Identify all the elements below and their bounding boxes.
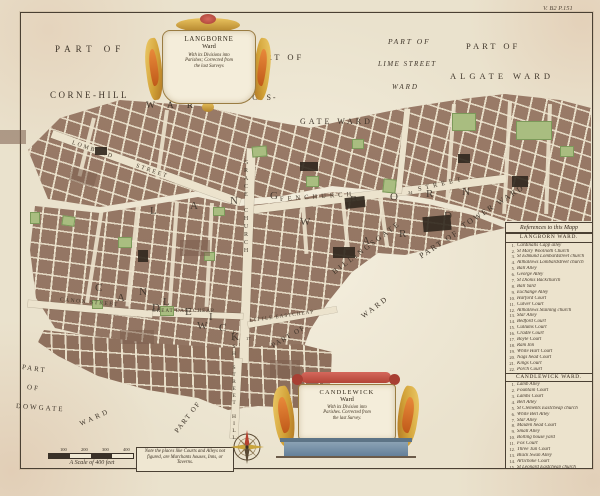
ward-letter-candlewick: A (117, 292, 125, 304)
area-label-algate-ward: ALGATE WARD (450, 71, 554, 81)
area-label-lime-street: LIME STREET (378, 60, 437, 68)
cartouche-title: CANDLEWICK (299, 389, 395, 396)
garden-patch (61, 215, 75, 227)
area-label-bishopsgate: GATE WARD (300, 117, 373, 126)
area-label-lime-ward: WARD (392, 83, 419, 91)
note-box: Note the places like Courts and Alleys n… (136, 447, 234, 472)
ward-letter-langborn: N (230, 195, 238, 207)
dark-building (458, 154, 470, 163)
ward-letter-ward: R (399, 228, 406, 240)
ward-letter-langborn: G (270, 190, 278, 202)
compass-rose-icon (228, 428, 266, 466)
garden-patch (118, 237, 132, 248)
cartouche-panel: CANDLEWICK Ward With its Division into P… (298, 384, 396, 440)
area-label-cornhill: CORNE-HILL (50, 90, 129, 100)
scale-tick: 100 (60, 447, 67, 452)
cartouche-pedestal (284, 442, 408, 456)
ref-name: St Leonard Eastcheap church (517, 465, 592, 468)
map-reference-number: 34 (408, 190, 413, 195)
dark-building (300, 162, 318, 171)
area-label-dowgate-of: OF (26, 383, 40, 393)
ward-letter-langborn: R (426, 188, 433, 200)
ward-letter-candlewick: L (163, 296, 170, 308)
reference-panel: References to this Mapp LANGBORN WARD.1.… (505, 222, 592, 468)
shaded-block (0, 130, 26, 144)
street-label-great-eastcheap: GREAT EASTCHEAP (152, 308, 215, 314)
ward-letter-candlewick: E (185, 306, 192, 318)
ward-letter-langborn: B (350, 194, 357, 206)
garden-patch (352, 139, 364, 149)
scale-tick: 200 (81, 447, 88, 452)
ref-name: Porch Court (517, 367, 592, 373)
cartouche-candlewick: CANDLEWICK Ward With its Division into P… (268, 368, 424, 466)
shaded-block (180, 240, 210, 256)
ref-number: 22. (506, 367, 517, 373)
ward-letter-candlewick: D (152, 302, 160, 314)
ward-letter-candlewick: N (139, 286, 147, 298)
garden-patch (30, 212, 40, 224)
street-label-gracechurch: GRACE CHURCH (243, 160, 249, 330)
garden-patch (213, 207, 225, 216)
area-label-part-of-nw: PART OF (55, 44, 125, 54)
ward-letter-candlewick: C (219, 322, 226, 334)
scale-tick: 400 (123, 447, 130, 452)
area-label-part-of-algate: PART OF (466, 41, 520, 51)
garden-patch (252, 145, 268, 157)
scale-bar: 100200300400 A Scale of 400 feet (46, 447, 138, 466)
area-label-part-of-lime: PART OF (388, 37, 431, 46)
cartouche-crown-jewel (200, 14, 216, 24)
ward-letter-candlewick: K (231, 331, 239, 343)
ref-number: 15. (506, 465, 517, 468)
scale-tick-labels: 100200300400 (46, 447, 138, 453)
scale-tick: 300 (102, 447, 109, 452)
cartouche-line: the last Survey. (299, 416, 395, 421)
garden-patch (306, 176, 319, 187)
ward-letter-candlewick: I (209, 311, 213, 323)
cartouche-ward-word: Ward (299, 396, 395, 403)
ward-letter-candlewick: W (197, 320, 207, 332)
ref-section-heading: LANGBORN WARD. (506, 233, 592, 243)
ref-section-heading: CANDLEWICK WARD. (506, 373, 592, 383)
cartouche-panel: LANGBORNE Ward With its Divisions into P… (162, 30, 256, 104)
ward-letter-langborn: A (190, 200, 198, 212)
cartouche-line: the last Surveys (163, 64, 255, 69)
garden-patch (560, 146, 574, 157)
ward-letter-candlewick: C (95, 282, 102, 294)
garden-patch (452, 113, 476, 131)
ward-letter-ward: D (444, 210, 452, 222)
reference-panel-title: References to this Mapp (506, 223, 592, 233)
antique-map-page: V. B2 P.151 PART OF CORNE- (0, 0, 600, 496)
ref-row: 22.Porch Court (506, 367, 592, 373)
garden-patch (516, 121, 552, 140)
ward-letter-langborn: O (390, 191, 398, 203)
cartouche-ward-word: Ward (163, 43, 255, 50)
scale-label: A Scale of 400 feet (46, 460, 138, 466)
street-label-fish-street-hill: FISH STREET HILL (231, 330, 237, 435)
plate-number: V. B2 P.151 (543, 5, 573, 12)
ward-letter-ward: W (300, 216, 310, 228)
shaded-block (120, 330, 154, 344)
ward-letter-langborn: N (462, 186, 470, 198)
cartouche-ribbon (301, 372, 391, 383)
ref-row: 15.St Leonard Eastcheap church (506, 465, 592, 468)
map-reference-number: 17 (246, 336, 251, 341)
ward-letter-langborn: L (150, 205, 157, 217)
ward-letter-ward: A (362, 235, 370, 247)
cartouche-pedestal-base (276, 456, 416, 458)
reference-sections: LANGBORN WARD.1.Cardinalls Capp alley2.S… (506, 233, 592, 468)
dark-building (138, 250, 148, 262)
cartouche-title: LANGBORNE (163, 36, 255, 43)
scale-bar-segments (48, 453, 134, 459)
cartouche-langborne: LANGBORNE Ward With its Divisions into P… (146, 16, 270, 112)
